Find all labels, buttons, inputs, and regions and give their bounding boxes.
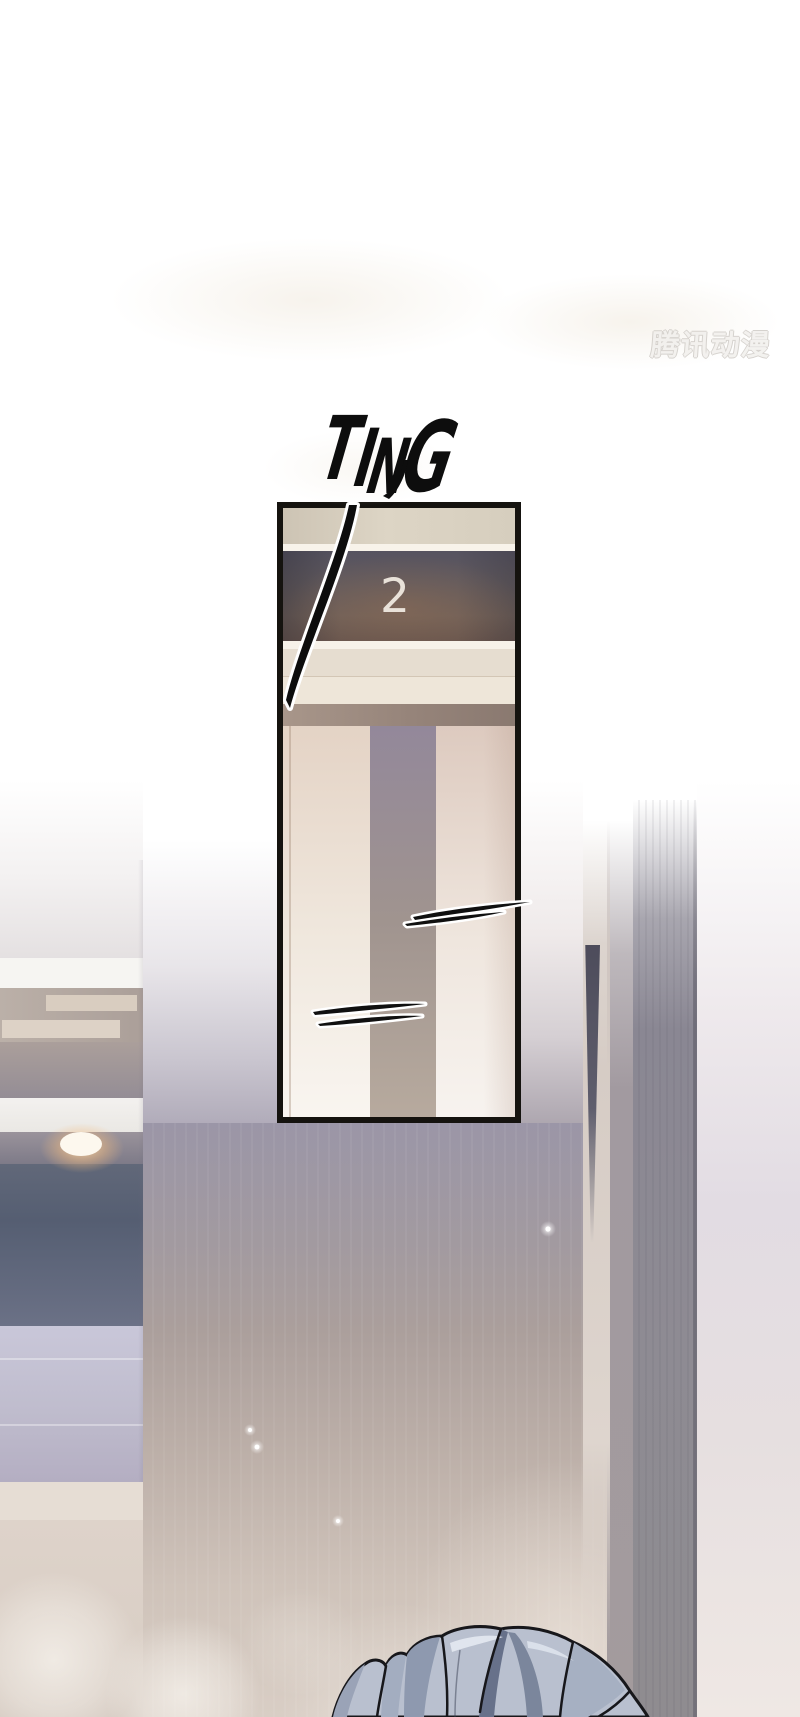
watermark-tencent-comics: 腾讯动漫	[650, 322, 800, 360]
elevator-door-left	[283, 726, 370, 1117]
elevator-ceiling-strip	[283, 508, 515, 544]
hallway-cove	[0, 1132, 143, 1166]
sfx-letter-t: T	[308, 398, 373, 500]
elevator-header-strip	[283, 677, 515, 704]
top-soft-glow	[263, 430, 453, 506]
elevator-doors	[283, 726, 515, 1117]
right-wall	[697, 780, 800, 1717]
hallway-dark-ceiling	[0, 1164, 143, 1326]
top-soft-glow	[110, 238, 510, 362]
shadow-band-edge	[693, 800, 697, 1717]
doorframe-strip	[583, 820, 610, 1650]
hallway-soffit	[0, 988, 143, 1042]
hallway-ceiling-band-upper	[0, 958, 143, 988]
hallway-recessed-panel	[2, 1020, 120, 1038]
wall-seam	[0, 1358, 143, 1360]
hallway-fade	[0, 780, 143, 960]
sfx-letter-n: N	[357, 424, 420, 512]
hallway-baseboard	[0, 1482, 143, 1522]
floor-indicator-number: 2	[380, 573, 410, 620]
elevator-trim-line	[283, 544, 515, 551]
elevator-door-gap	[370, 726, 436, 1117]
sfx-g-tail	[383, 460, 408, 499]
near-wall-column-left	[143, 840, 277, 1123]
hallway-lavender-wall	[0, 1326, 143, 1482]
near-wall-column-right	[521, 780, 583, 1123]
doorframe-gap-band	[607, 820, 633, 1717]
hallway-soffit-shadow	[0, 1042, 143, 1098]
floor-indicator-band: 2	[283, 551, 515, 641]
elevator-door-right	[436, 726, 515, 1117]
elevator-lintel-strip	[283, 649, 515, 677]
comic-panel: 2	[277, 502, 521, 1123]
comic-page: 2	[0, 0, 800, 1717]
elevator-trim-line	[283, 641, 515, 649]
sfx-letter-i: I	[343, 412, 388, 505]
wall-seam	[0, 1424, 143, 1426]
shadow-band	[633, 800, 697, 1717]
door-seam	[289, 726, 291, 1117]
doorframe-band	[283, 704, 515, 726]
sfx-letter-g: G	[386, 400, 471, 514]
sfx-ting: T I N G	[308, 398, 472, 515]
hallway-ceiling-band-lower	[0, 1098, 143, 1132]
hallway-lower-wall	[0, 1520, 143, 1717]
hallway-recessed-panel	[46, 995, 137, 1011]
